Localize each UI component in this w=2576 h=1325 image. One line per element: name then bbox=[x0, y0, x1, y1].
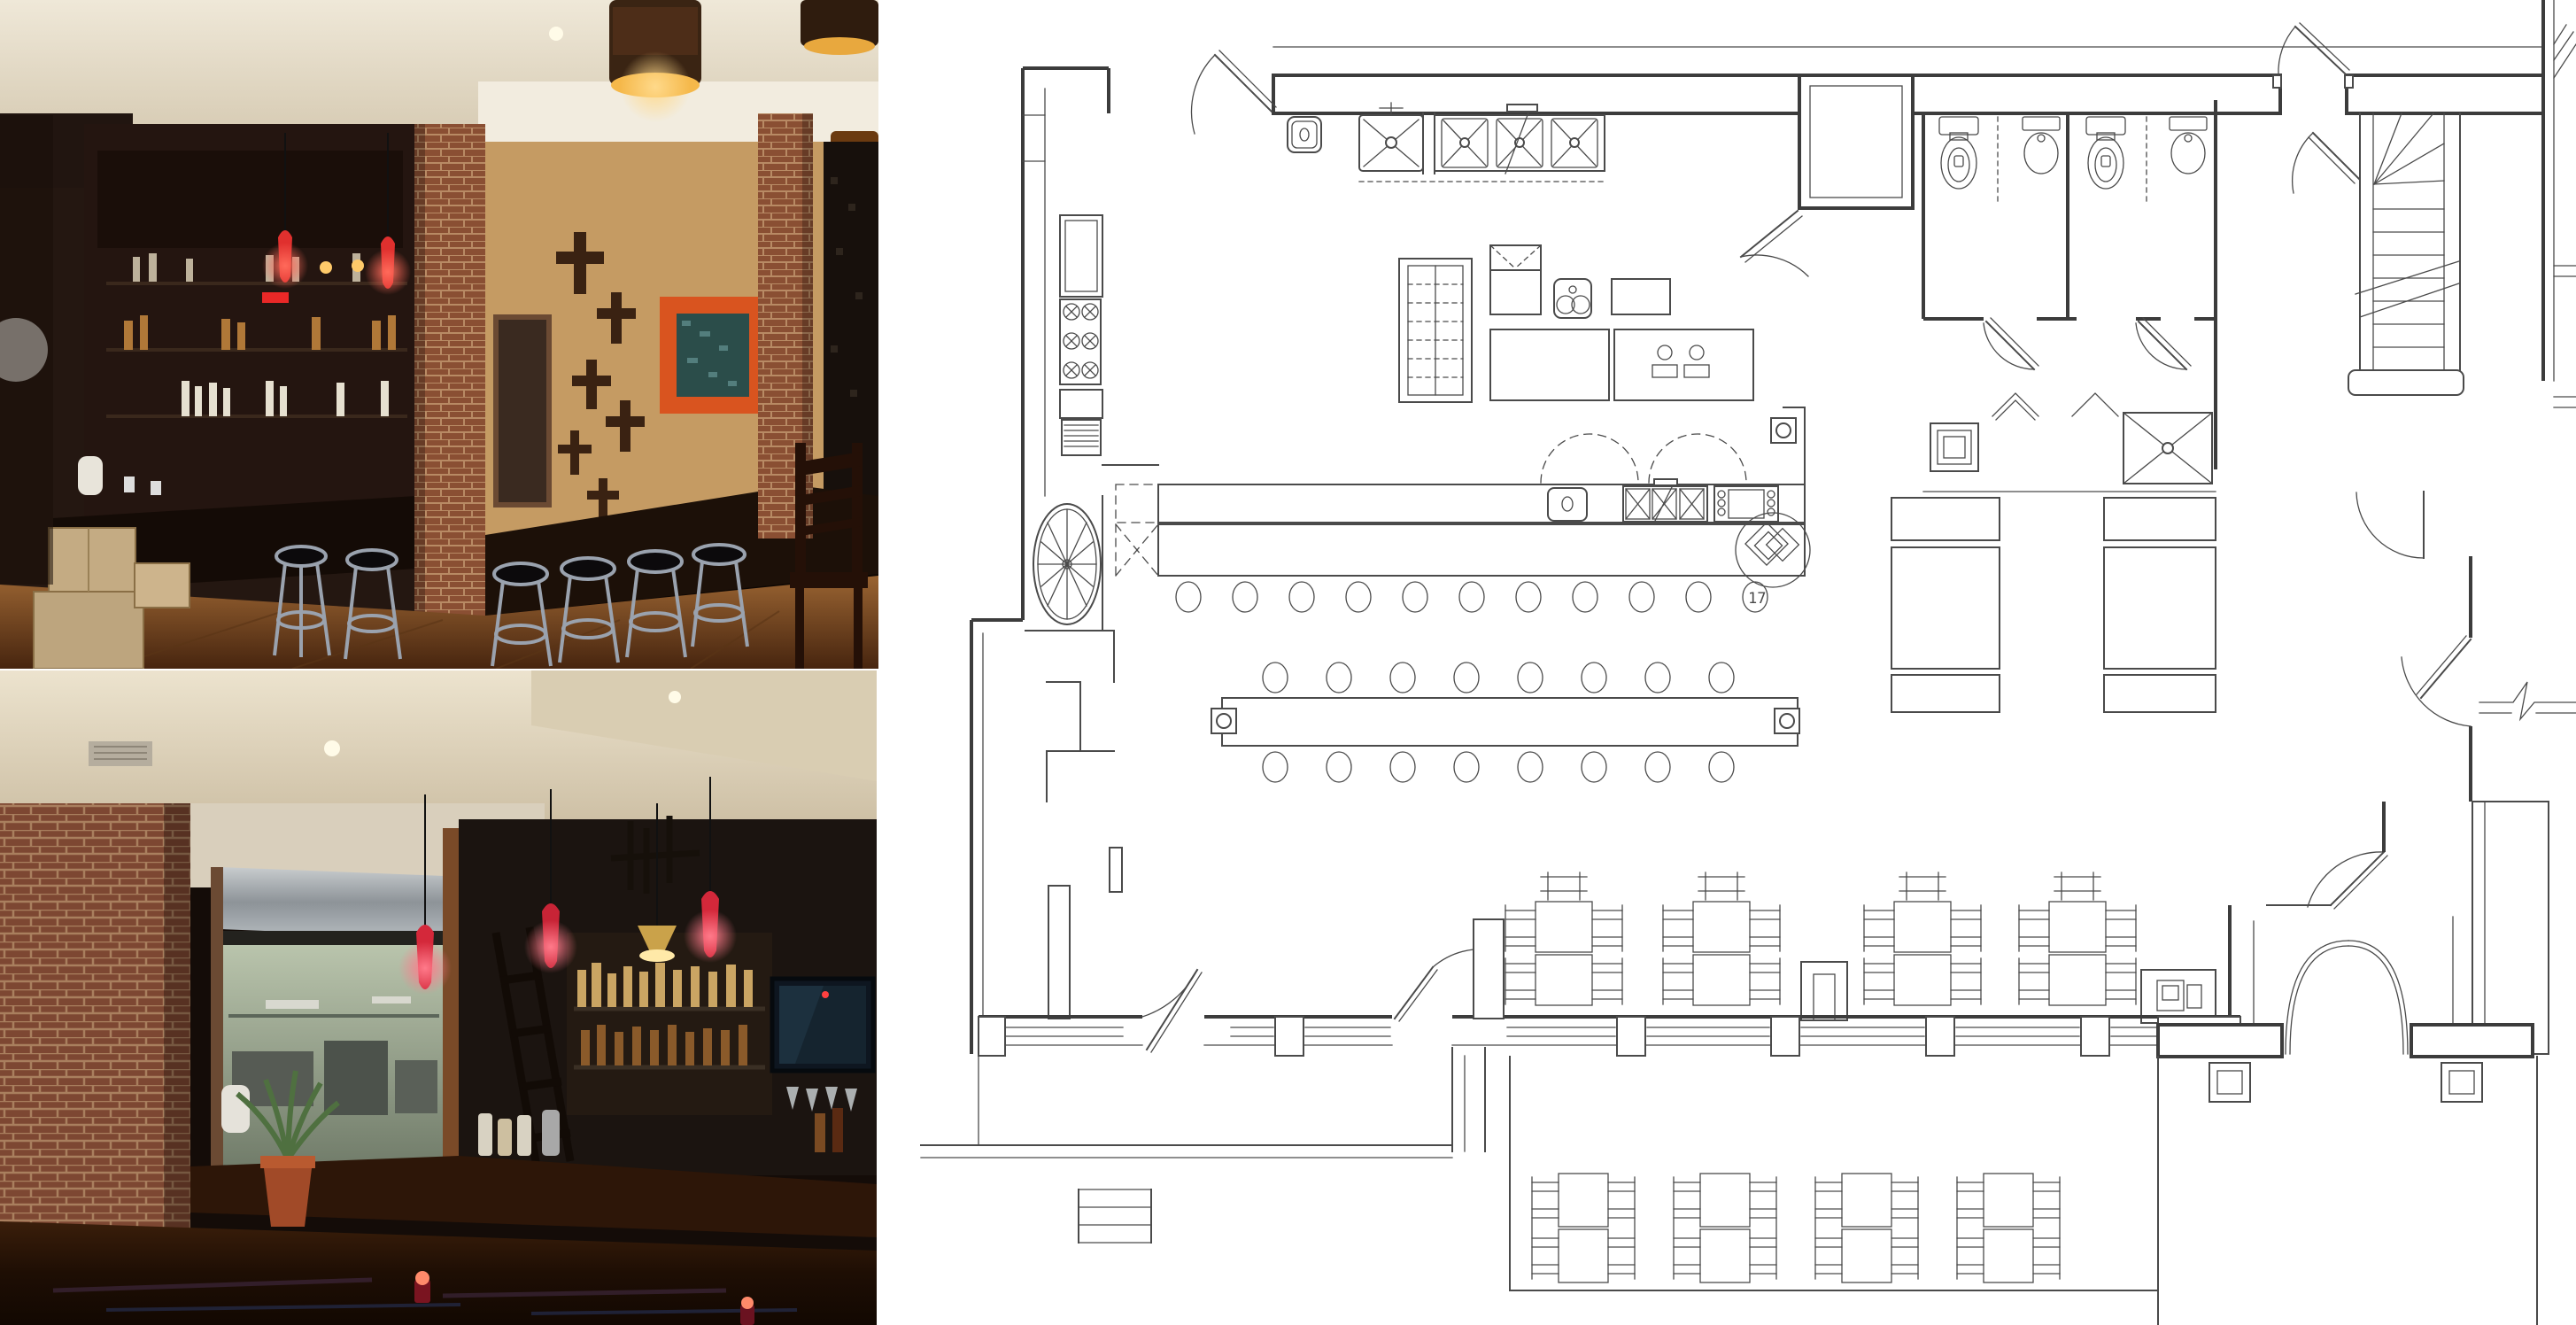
planter-icon bbox=[2441, 1063, 2482, 1102]
dining-table-cluster bbox=[2019, 872, 2136, 1005]
brick-column bbox=[414, 124, 485, 669]
kitchen-hood-icon bbox=[220, 867, 445, 938]
recessed-light-icon bbox=[669, 691, 681, 703]
recessed-light-icon bbox=[549, 27, 563, 41]
patio-table-cluster bbox=[1815, 1174, 1918, 1282]
candle-light-icon bbox=[352, 260, 364, 272]
column-icon bbox=[1771, 418, 1796, 443]
stair-door-icon bbox=[2293, 133, 2359, 193]
bar: 17 bbox=[1116, 479, 1810, 612]
exterior-walls bbox=[971, 0, 2576, 1054]
patio-door-icon bbox=[1395, 919, 1504, 1021]
dining-table-cluster bbox=[1505, 872, 1622, 1005]
bar-interior-photo bbox=[0, 0, 878, 669]
mirror-icon bbox=[496, 317, 549, 505]
wall-break-icon bbox=[2479, 682, 2576, 719]
bar-gate-icon bbox=[1116, 524, 1158, 576]
ice-bin-icon bbox=[1490, 245, 1541, 314]
right-corridor bbox=[2356, 492, 2576, 1054]
entry-door-icon bbox=[1142, 970, 1202, 1052]
storefront bbox=[979, 919, 2240, 1056]
server-station-icon bbox=[1801, 962, 1847, 1020]
dining-table-cluster bbox=[1663, 872, 1780, 1005]
planter-icon bbox=[2209, 1063, 2250, 1102]
patio-table-cluster bbox=[1957, 1174, 2060, 1282]
votive-candle-icon bbox=[414, 1271, 430, 1303]
six-burner-range-icon bbox=[1060, 299, 1101, 384]
toilet-icon bbox=[2086, 117, 2125, 189]
shelving-rack-icon bbox=[1399, 259, 1472, 402]
column-icon bbox=[1775, 709, 1799, 733]
framed-artwork bbox=[660, 297, 766, 414]
prep-tables-icon bbox=[1490, 329, 1753, 400]
work-table-icon bbox=[1612, 279, 1670, 314]
hood-icon bbox=[1060, 215, 1102, 297]
ice-bin-battery-icon bbox=[1623, 479, 1707, 523]
dining-table-cluster bbox=[1864, 872, 1981, 1005]
hand-sink-icon bbox=[1288, 117, 1321, 152]
toilet-icon bbox=[1939, 117, 1978, 189]
paper-roll-icon bbox=[221, 1085, 250, 1133]
kitchen-frame-post bbox=[211, 867, 223, 1177]
neon-sign-icon bbox=[262, 292, 289, 303]
lavatory-icon bbox=[2023, 117, 2060, 174]
walk-in-cooler bbox=[1741, 75, 1913, 484]
utility-area bbox=[1891, 393, 2216, 712]
kitchen-back-door-icon bbox=[1192, 50, 1276, 134]
column-icon bbox=[1211, 709, 1236, 733]
side-door-icon bbox=[2402, 636, 2471, 726]
closet-door-icon bbox=[1992, 393, 2038, 416]
vestibule-inner-door-icon bbox=[2267, 802, 2387, 909]
kitchen-frame-post bbox=[443, 828, 459, 1175]
communal-table bbox=[1211, 662, 1799, 782]
spiral-staircase bbox=[1025, 496, 1114, 802]
steps-icon bbox=[1079, 1189, 1151, 1243]
patio-table-cluster bbox=[1674, 1174, 1776, 1282]
bar-kitchen-photo bbox=[0, 670, 877, 1325]
recessed-light-icon bbox=[324, 740, 340, 756]
patio-table-cluster bbox=[1532, 1174, 1635, 1282]
restroom-door-icon bbox=[1984, 318, 2038, 369]
page-canvas: 17 bbox=[0, 0, 2576, 1325]
walk-in-door-icon bbox=[1741, 211, 1808, 276]
mop-sink-icon bbox=[1930, 423, 1978, 471]
broiler-icon bbox=[1060, 390, 1102, 455]
bar-stools: 17 bbox=[1176, 582, 1768, 612]
cup-icon bbox=[124, 477, 135, 492]
left-shadow bbox=[0, 115, 53, 585]
tv-screen-icon bbox=[772, 979, 873, 1071]
corridor-door-icon bbox=[2356, 492, 2424, 558]
stair-landing bbox=[2348, 370, 2464, 395]
closet-door-icon bbox=[2072, 393, 2118, 416]
dining-area bbox=[1505, 872, 2254, 1023]
cup-icon bbox=[151, 481, 161, 495]
drum-pendant-icon bbox=[801, 0, 878, 55]
range-battery-icon bbox=[1435, 105, 1605, 174]
votive-candle-icon bbox=[740, 1297, 754, 1325]
restrooms bbox=[1923, 100, 2216, 469]
lavatory-icon bbox=[2170, 117, 2207, 174]
rear-entry-door-icon bbox=[2273, 23, 2353, 88]
kitchen bbox=[1060, 50, 1753, 483]
curved-double-doors-icon bbox=[2286, 941, 2408, 1054]
restroom-door-icon bbox=[2136, 318, 2191, 369]
pass-flip-counter-icon bbox=[1541, 434, 1638, 483]
bar-sink-icon bbox=[1548, 488, 1587, 521]
patio bbox=[921, 1048, 2158, 1290]
floor-sink-room-icon bbox=[2123, 413, 2212, 484]
stool-tag: 17 bbox=[1748, 590, 1766, 608]
banquette-shelves-icon bbox=[1891, 498, 2216, 712]
prep-sink-icon bbox=[1554, 279, 1591, 318]
beer-tap-unit-icon bbox=[1714, 486, 1778, 522]
candle-light-icon bbox=[320, 261, 332, 274]
paper-roll-icon bbox=[78, 456, 103, 495]
bar-counter bbox=[1158, 524, 1805, 576]
